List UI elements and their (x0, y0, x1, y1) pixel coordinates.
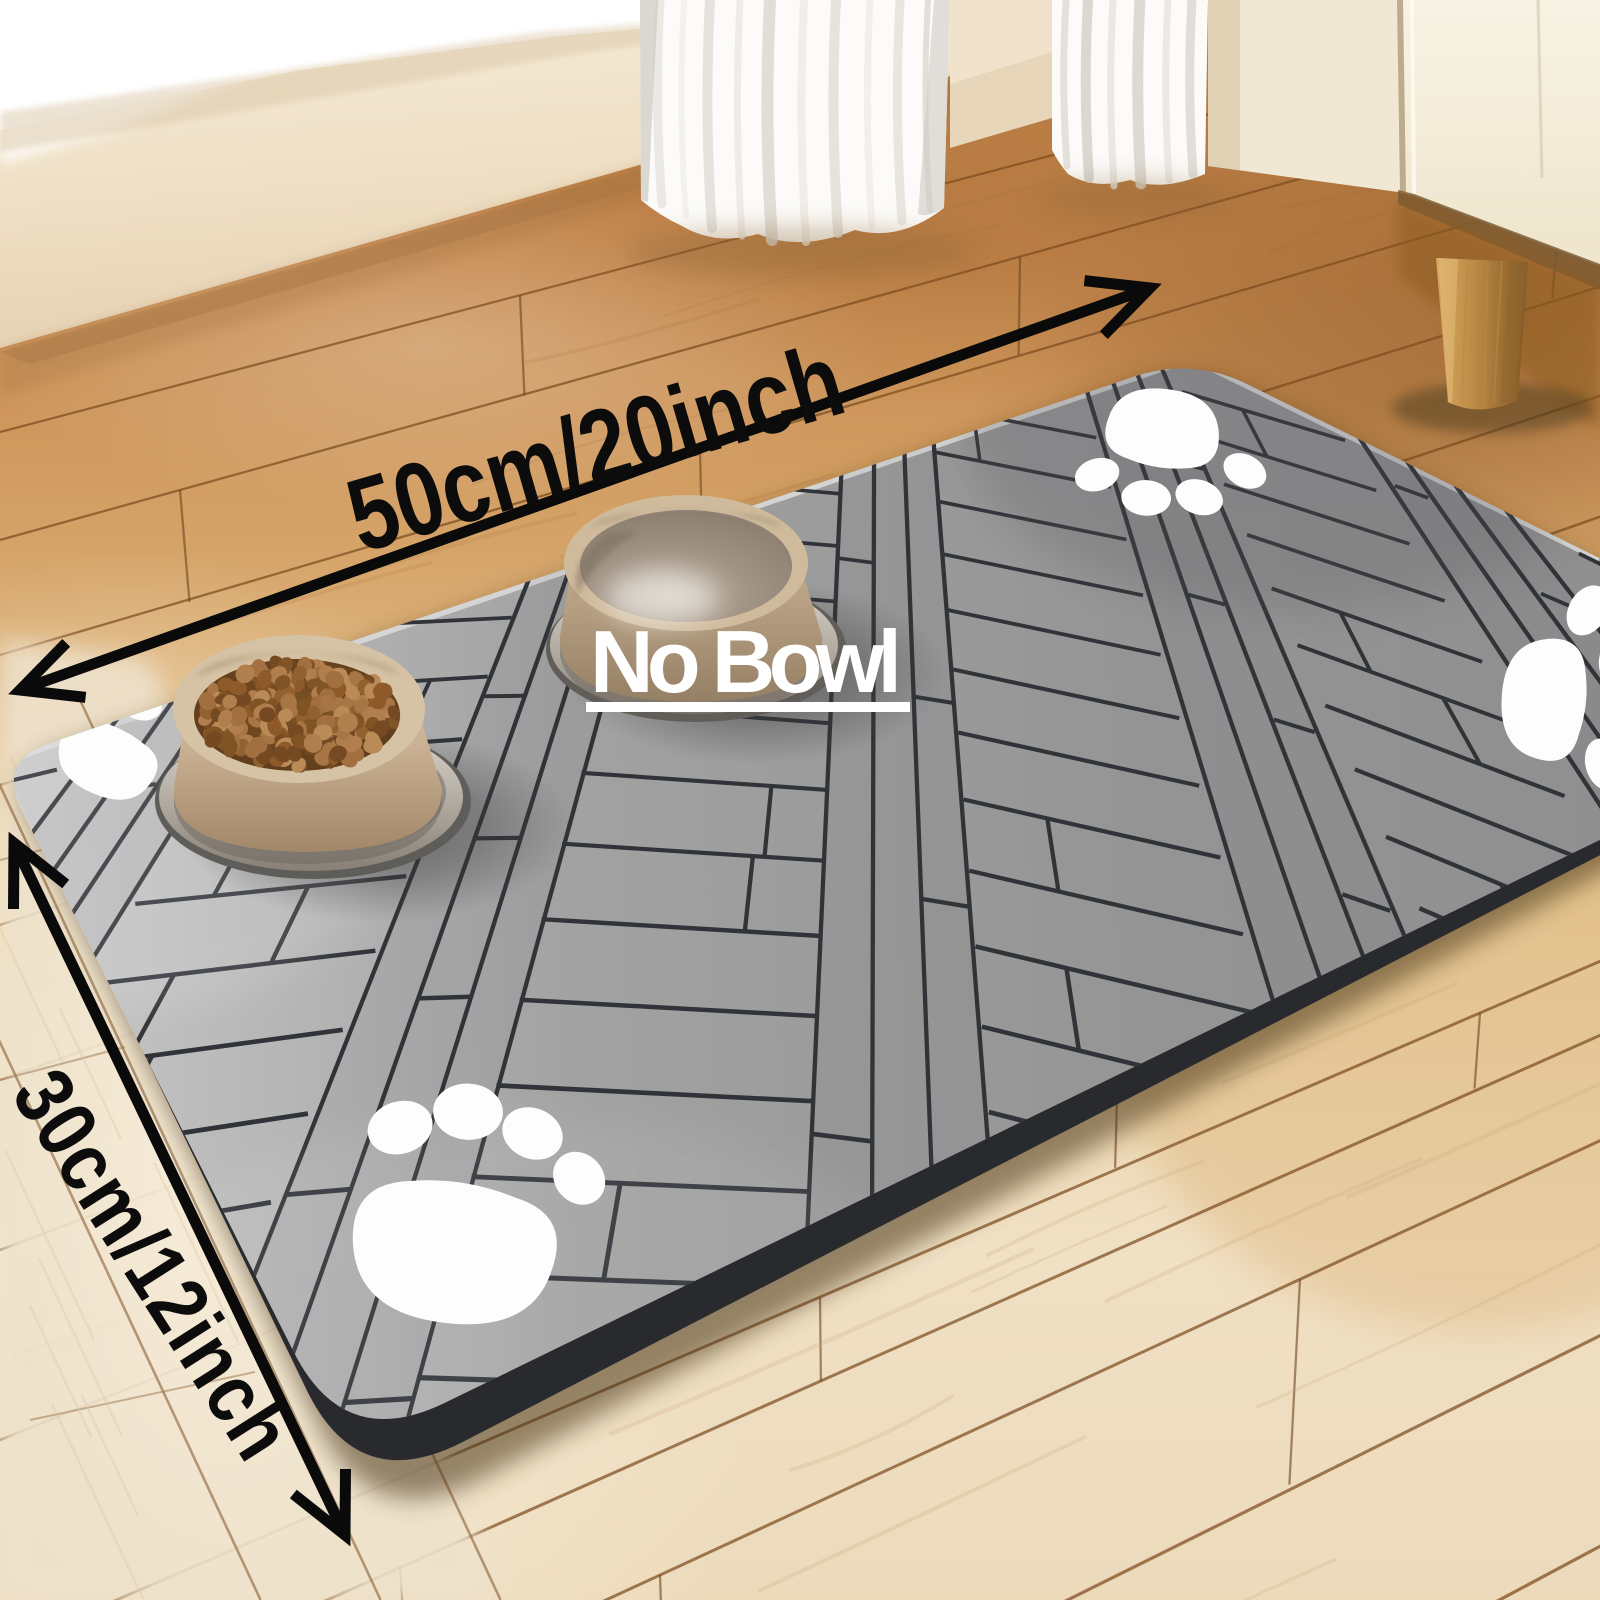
svg-text:No Bowl: No Bowl (590, 612, 902, 711)
